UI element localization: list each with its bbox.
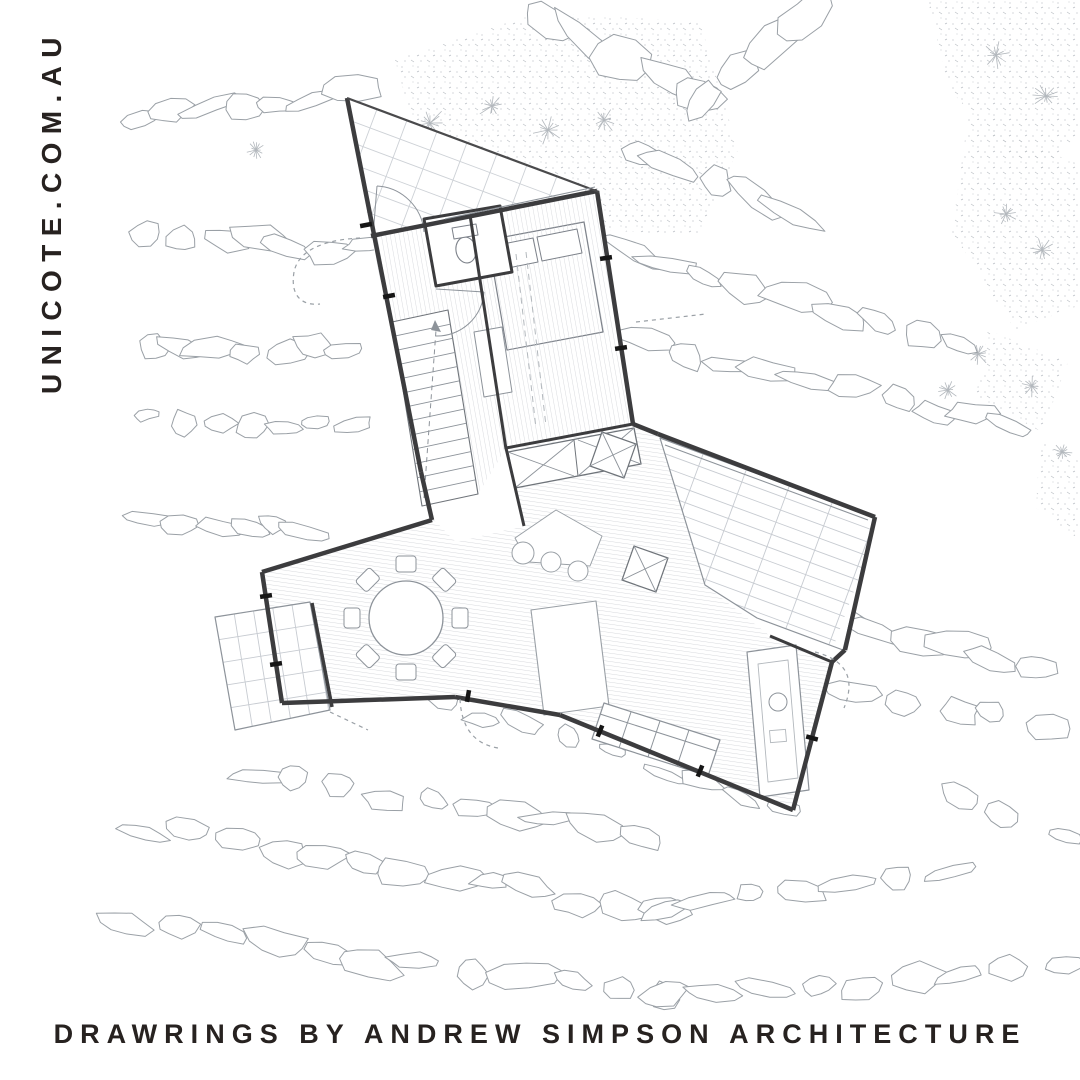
poster-canvas: UNICOTE.COM.AU DRAWRINGS BY ANDREW SIMPS… xyxy=(0,0,1080,1080)
credit-caption: DRAWRINGS BY ANDREW SIMPSON ARCHITECTURE xyxy=(0,1019,1080,1050)
floor-plan-drawing xyxy=(0,0,1080,1080)
site-url-vertical-text: UNICOTE.COM.AU xyxy=(36,29,68,394)
